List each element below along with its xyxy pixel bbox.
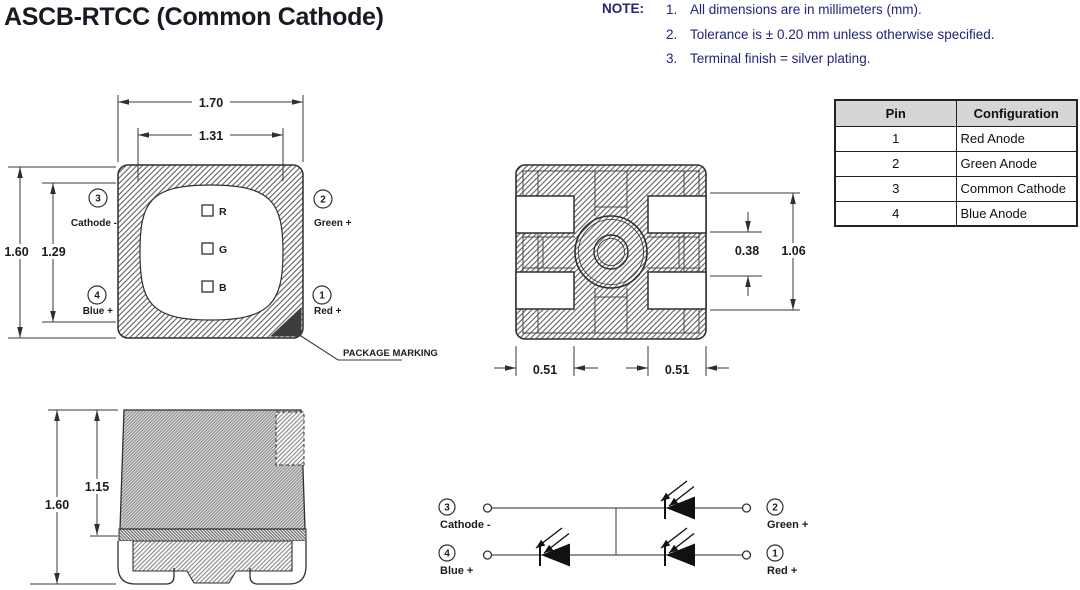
schematic-pin4-label: Blue +	[440, 565, 473, 577]
blue-chip-label: B	[219, 282, 227, 294]
side-view-dimensions: 1.60 1.15	[30, 410, 118, 584]
technical-drawing: R G B 3 Cathode - 2 Green + 4 Blue + 1 R…	[0, 0, 1080, 590]
pin4-label: Blue +	[83, 306, 113, 317]
pin1-circle-number: 1	[319, 291, 325, 302]
schematic-pin2-label: Green +	[767, 519, 808, 531]
pin2-circle-number: 2	[320, 195, 326, 206]
dim-pad-left: 0.51	[533, 363, 557, 377]
bottom-view: 1.06 0.38 0.51 0.51	[494, 165, 808, 377]
red-chip	[202, 205, 213, 216]
schematic-pin2-number: 2	[772, 503, 778, 514]
dim-pad-right: 0.51	[665, 363, 689, 377]
pin2-label: Green +	[314, 218, 352, 229]
schematic-pin1-number: 1	[772, 549, 778, 560]
pad-top-left	[516, 196, 574, 233]
dim-pad-gap: 0.38	[735, 244, 759, 258]
schematic-pin3-label: Cathode -	[440, 519, 491, 531]
schematic-pin1-label: Red +	[767, 565, 797, 577]
led-red	[661, 528, 695, 567]
datasheet-page: ASCB-RTCC (Common Cathode) NOTE: 1. All …	[0, 0, 1080, 590]
green-chip	[202, 243, 213, 254]
dim-height-outer: 1.60	[4, 245, 28, 259]
dim-width-inner: 1.31	[199, 129, 223, 143]
pad-bottom-right	[648, 272, 706, 309]
dim-body-height: 1.15	[85, 480, 109, 494]
green-chip-label: G	[219, 244, 227, 256]
package-marking-label: PACKAGE MARKING	[343, 348, 438, 359]
circuit-schematic: 3 Cathode - 4 Blue + 2 Green + 1 Red +	[439, 481, 808, 577]
package-marking-callout: PACKAGE MARKING	[301, 336, 438, 360]
dim-height-inner: 1.29	[41, 245, 65, 259]
top-view-package: R G B	[118, 165, 303, 338]
schematic-pin-callouts: 3 Cathode - 4 Blue + 2 Green + 1 Red +	[439, 499, 808, 577]
top-view: R G B 3 Cathode - 2 Green + 4 Blue + 1 R…	[2, 95, 438, 360]
pad-bottom-left	[516, 272, 574, 309]
schematic-wires	[492, 508, 742, 555]
led-green	[661, 481, 695, 520]
dim-total-height: 1.60	[45, 498, 69, 512]
side-view: 1.60 1.15	[30, 410, 306, 584]
schematic-pin4-number: 4	[444, 549, 450, 560]
pin4-circle-number: 4	[94, 291, 100, 302]
pad-top-right	[648, 196, 706, 233]
led-blue	[536, 528, 570, 567]
dim-width-outer: 1.70	[199, 96, 223, 110]
side-view-band	[119, 529, 306, 541]
schematic-terminals	[484, 504, 751, 559]
pin3-label: Cathode -	[71, 218, 117, 229]
blue-chip	[202, 281, 213, 292]
schematic-pin3-number: 3	[444, 503, 450, 514]
side-view-marking-zone	[276, 412, 304, 465]
pin3-circle-number: 3	[95, 194, 101, 205]
pin1-label: Red +	[314, 306, 342, 317]
red-chip-label: R	[219, 206, 227, 218]
dim-pad-span: 1.06	[781, 244, 805, 258]
